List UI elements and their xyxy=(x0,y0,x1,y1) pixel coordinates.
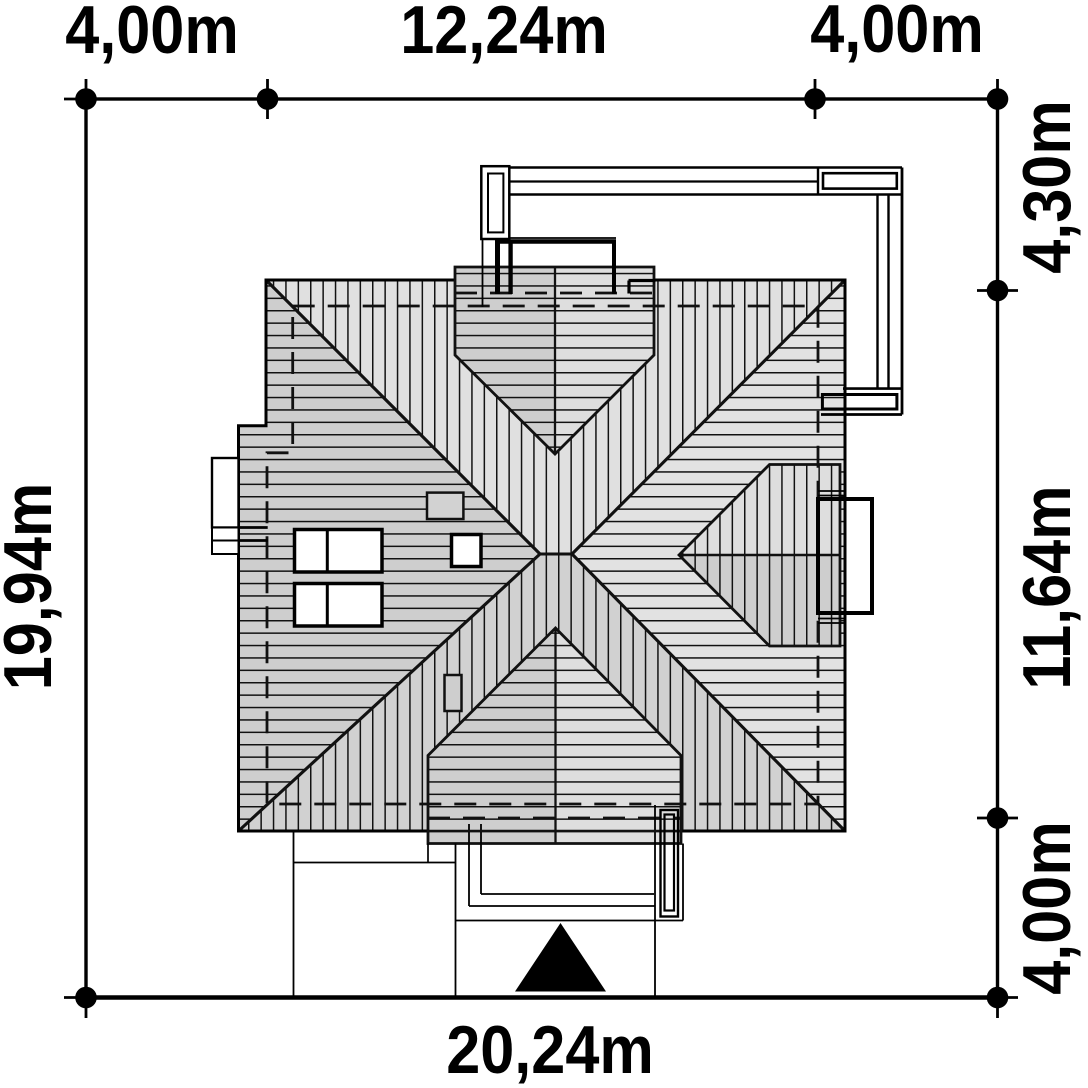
svg-text:19,94m: 19,94m xyxy=(0,483,66,691)
svg-text:11,64m: 11,64m xyxy=(1008,485,1085,689)
svg-text:4,00m: 4,00m xyxy=(810,0,983,67)
svg-text:12,24m: 12,24m xyxy=(400,0,608,68)
svg-text:20,24m: 20,24m xyxy=(446,1011,654,1088)
svg-text:4,30m: 4,30m xyxy=(1008,100,1085,273)
svg-text:4,00m: 4,00m xyxy=(65,0,238,68)
svg-text:4,00m: 4,00m xyxy=(1008,821,1085,994)
